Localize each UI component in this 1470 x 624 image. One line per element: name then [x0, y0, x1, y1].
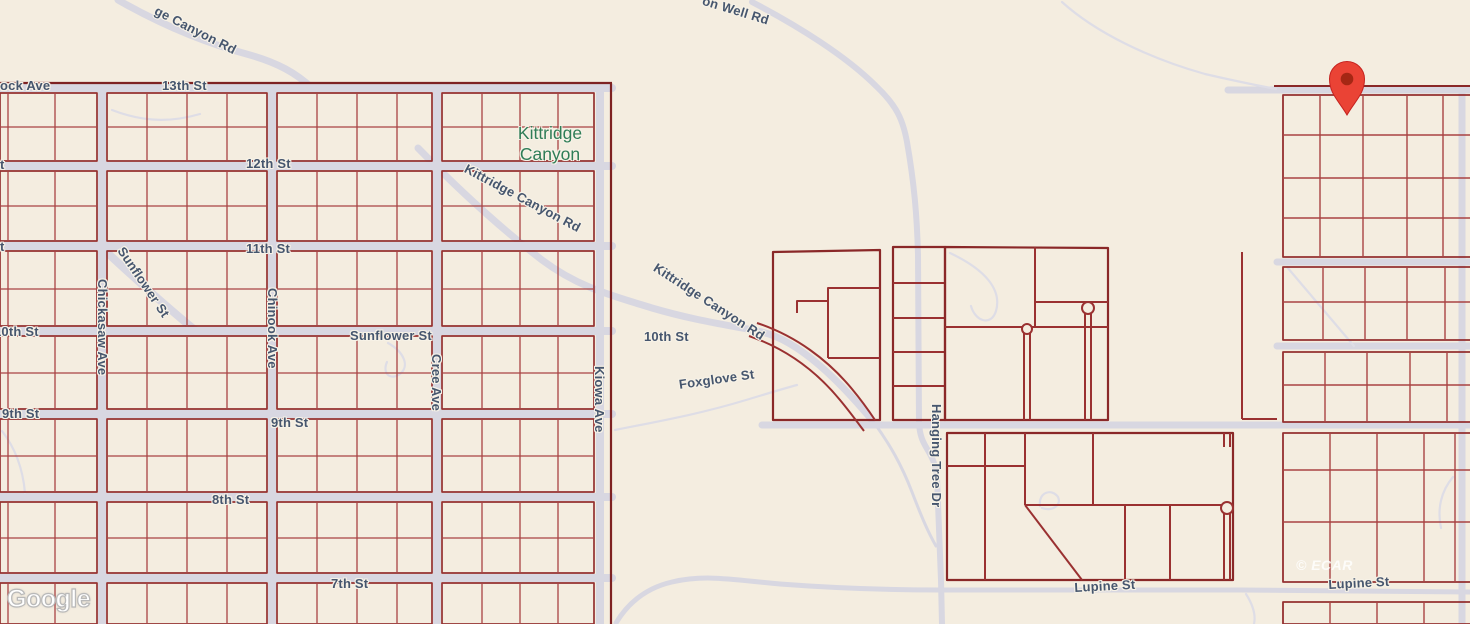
street-label-lupine-st-east: Lupine St — [1328, 574, 1390, 592]
street-label-chinook-ave: Chinook Ave — [265, 288, 280, 369]
street-label-lupine-st-west: Lupine St — [1074, 577, 1136, 595]
street-label-12th-st: 12th St — [246, 156, 291, 171]
street-label-rock-ave-partial: ock Ave — [0, 78, 50, 93]
street-label-9th-st-left: 9th St — [2, 406, 39, 421]
street-label-edge-fragment-11th: t — [0, 239, 5, 254]
street-label-13th-st: 13th St — [162, 78, 207, 93]
right-parcel-grid — [1283, 95, 1470, 624]
street-label-sunflower-st: Sunflower St — [350, 328, 432, 343]
street-label-hanging-tree-dr: Hanging Tree Dr — [929, 404, 944, 507]
street-label-8th-st: 8th St — [212, 492, 249, 507]
left-parcel-grid — [0, 93, 594, 624]
map-pin-center-dot — [1341, 73, 1354, 86]
street-label-7th-st: 7th St — [331, 576, 368, 591]
street-label-kiowa-ave: Kiowa Ave — [592, 366, 607, 433]
street-label-chickasaw-ave: Chickasaw Ave — [95, 279, 110, 375]
street-label-9th-st-mid: 9th St — [271, 415, 308, 430]
google-logo[interactable]: Google — [7, 585, 90, 614]
map-pin-icon[interactable] — [1330, 62, 1365, 116]
street-label-10th-st-mid: 10th St — [644, 329, 689, 344]
location-pin[interactable] — [1330, 62, 1365, 116]
street-label-10th-st-left: 10th St — [0, 324, 39, 339]
place-label-kittridge-canyon: Kittridge Canyon — [488, 123, 612, 165]
street-label-cree-ave: Cree Ave — [429, 354, 444, 411]
place-label-line2: Canyon — [488, 144, 612, 165]
street-label-11th-st: 11th St — [246, 241, 290, 256]
street-label-edge-fragment-12th: t — [0, 157, 5, 172]
map-canvas[interactable]: ock Ave 13th St ge Canyon Rd on Well Rd … — [0, 0, 1470, 624]
place-label-line1: Kittridge — [488, 123, 612, 144]
ecar-watermark: © ECAR — [1296, 557, 1353, 573]
